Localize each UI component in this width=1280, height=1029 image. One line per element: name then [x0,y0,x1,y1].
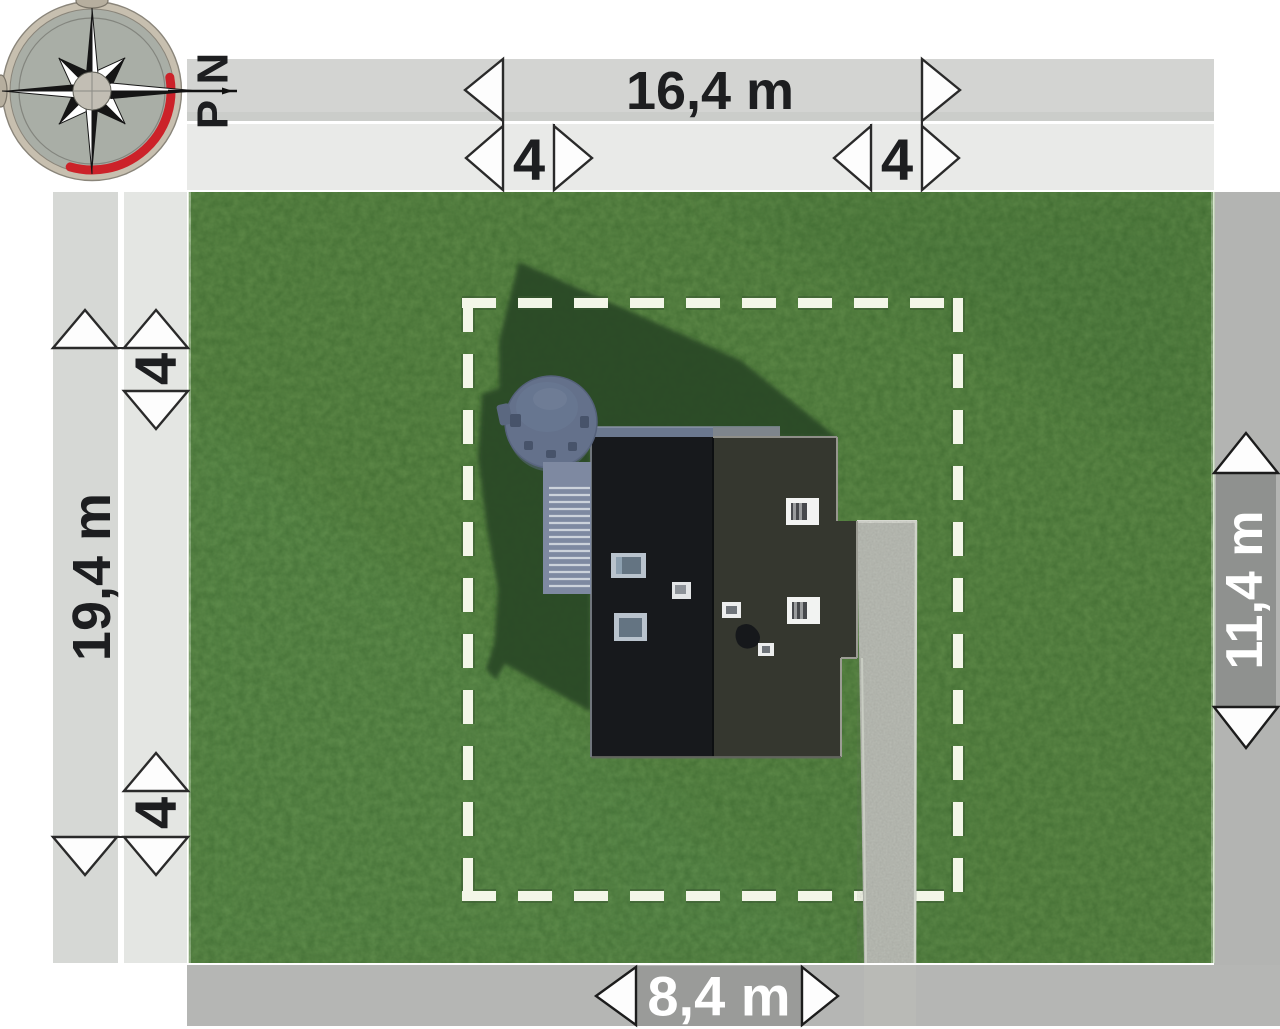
svg-text:4: 4 [124,353,189,385]
svg-text:19,4 m: 19,4 m [62,493,122,661]
svg-text:4: 4 [881,128,913,193]
svg-text:8,4 m: 8,4 m [647,965,790,1028]
svg-text:16,4 m: 16,4 m [626,61,794,121]
svg-text:4: 4 [124,797,189,829]
svg-text:4: 4 [513,128,545,193]
svg-text:P N: P N [189,51,238,130]
svg-text:11,4 m: 11,4 m [1216,510,1274,669]
